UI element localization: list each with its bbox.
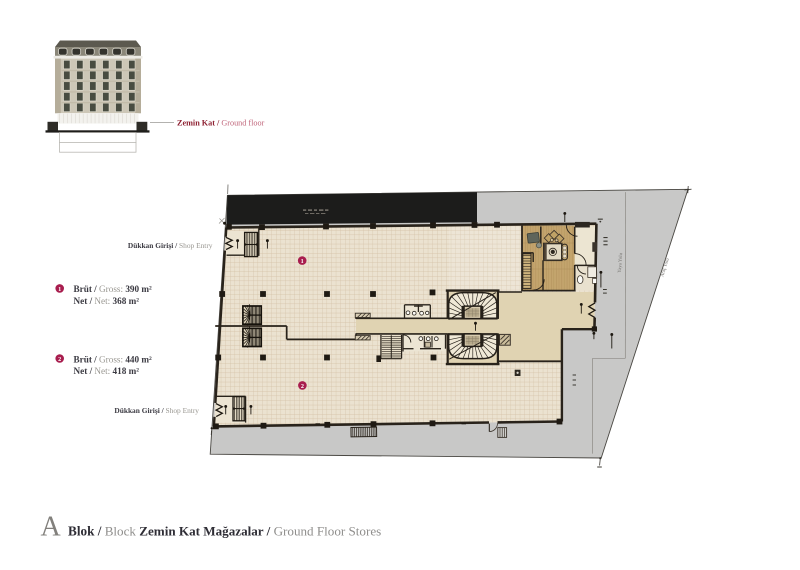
svg-text:Net / Net: 418 m²: Net / Net: 418 m²	[74, 366, 140, 376]
svg-text:2: 2	[58, 356, 61, 363]
svg-text:Brüt / Gross: 390 m²: Brüt / Gross: 390 m²	[74, 284, 153, 294]
svg-text:Dükkan Girişi / Shop Entry: Dükkan Girişi / Shop Entry	[128, 241, 213, 250]
svg-text:Net / Net: 368 m²: Net / Net: 368 m²	[74, 296, 140, 306]
svg-text:2: 2	[301, 383, 304, 390]
svg-text:Dükkan Girişi / Shop Entry: Dükkan Girişi / Shop Entry	[114, 406, 199, 415]
svg-text:1: 1	[58, 286, 61, 293]
svg-text:1: 1	[301, 258, 304, 265]
svg-text:Brüt / Gross: 440 m²: Brüt / Gross: 440 m²	[74, 354, 153, 364]
svg-text:Zemin Kat / Ground floor: Zemin Kat / Ground floor	[177, 118, 265, 127]
